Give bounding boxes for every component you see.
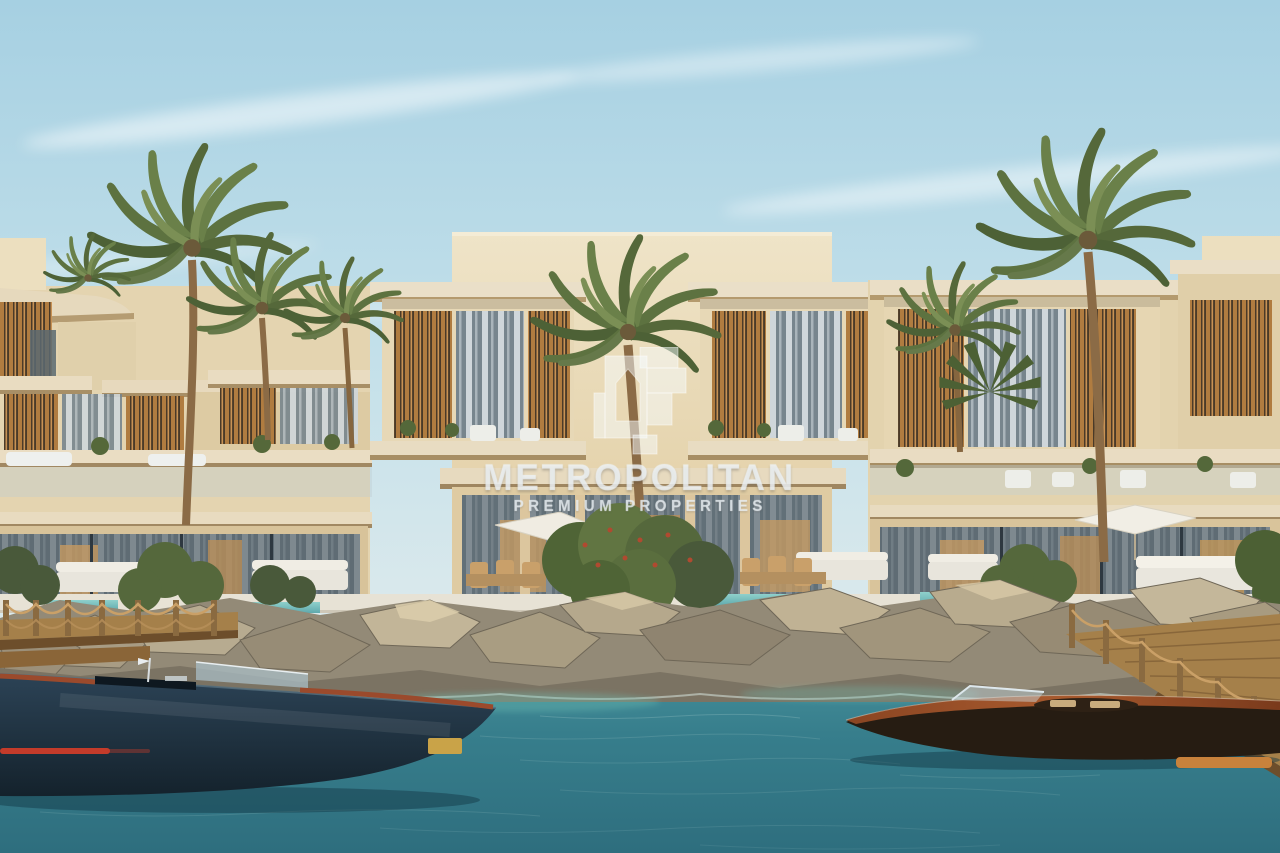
floating-platform <box>428 738 462 754</box>
cockpit <box>1034 698 1138 712</box>
fender-float <box>1176 757 1272 768</box>
villa-left <box>0 238 372 606</box>
scene-rendering <box>0 0 1280 853</box>
red-waterline-stripe <box>0 748 110 754</box>
property-photo: METROPOLITAN PREMIUM PROPERTIES <box>0 0 1280 853</box>
